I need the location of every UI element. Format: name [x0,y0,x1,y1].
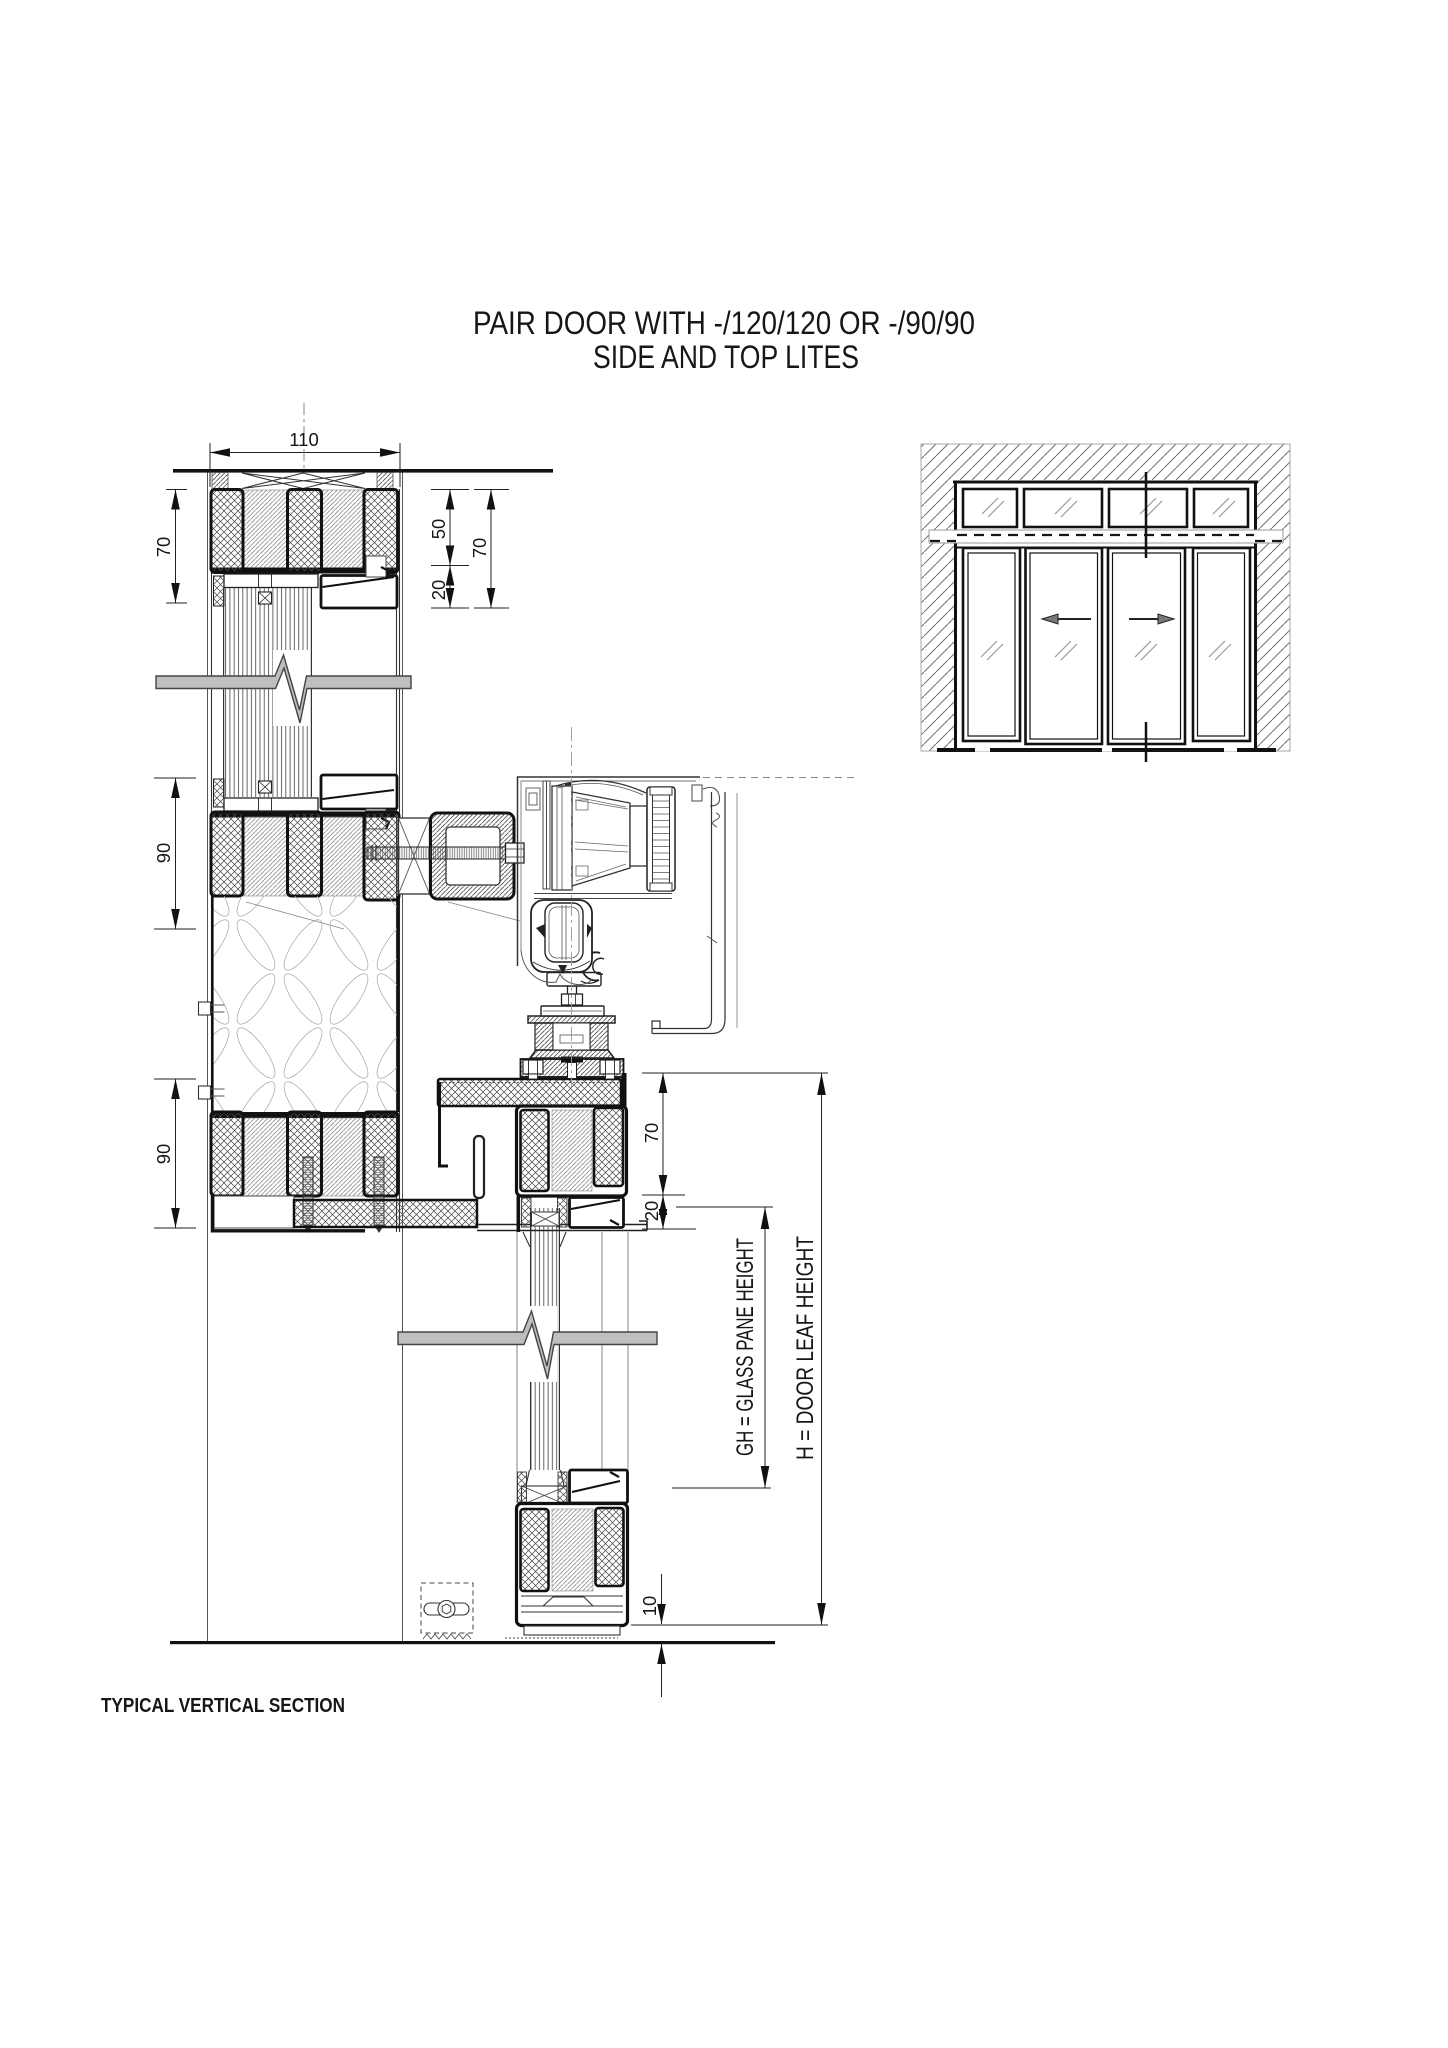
svg-text:PAIR DOOR WITH -/120/120 OR -/: PAIR DOOR WITH -/120/120 OR -/90/90 [473,305,975,341]
svg-text:GH = GLASS PANE HEIGHT: GH = GLASS PANE HEIGHT [732,1238,759,1456]
svg-text:90: 90 [153,1144,174,1165]
svg-text:110: 110 [289,429,319,450]
svg-text:70: 70 [153,537,174,558]
svg-text:TYPICAL VERTICAL SECTION: TYPICAL VERTICAL SECTION [101,1695,345,1717]
svg-text:50: 50 [428,519,449,540]
svg-text:90: 90 [153,843,174,864]
svg-text:20: 20 [641,1201,662,1222]
svg-text:20: 20 [428,580,449,601]
svg-text:70: 70 [469,538,490,559]
svg-text:70: 70 [641,1123,662,1144]
svg-text:H = DOOR LEAF HEIGHT: H = DOOR LEAF HEIGHT [792,1236,819,1460]
svg-text:10: 10 [639,1596,660,1617]
svg-text:SIDE AND TOP LITES: SIDE AND TOP LITES [593,339,859,375]
